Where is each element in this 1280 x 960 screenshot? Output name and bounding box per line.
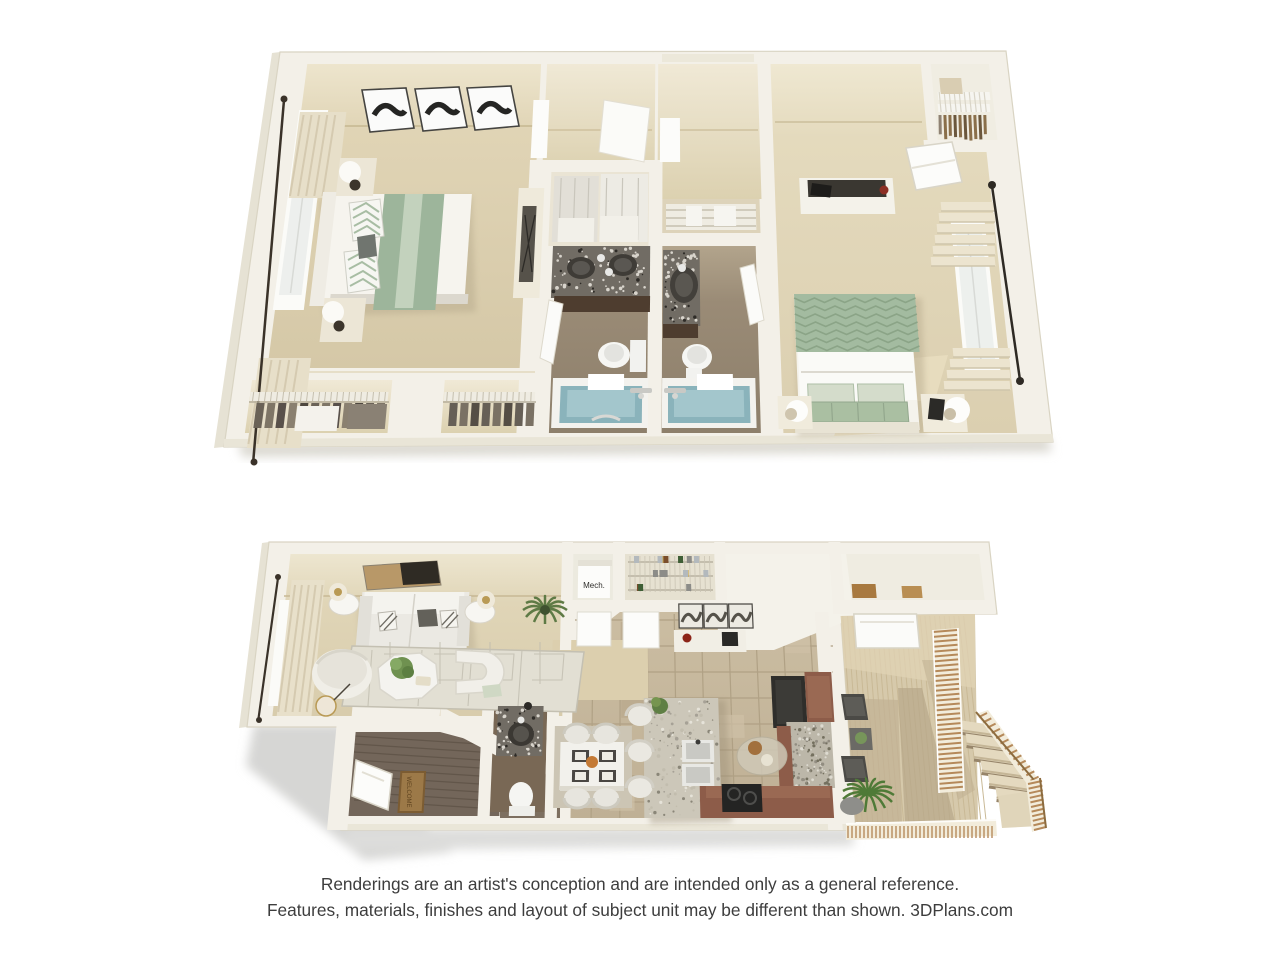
- svg-text:WELCOME: WELCOME: [405, 776, 411, 807]
- svg-text:Mech.: Mech.: [583, 581, 605, 590]
